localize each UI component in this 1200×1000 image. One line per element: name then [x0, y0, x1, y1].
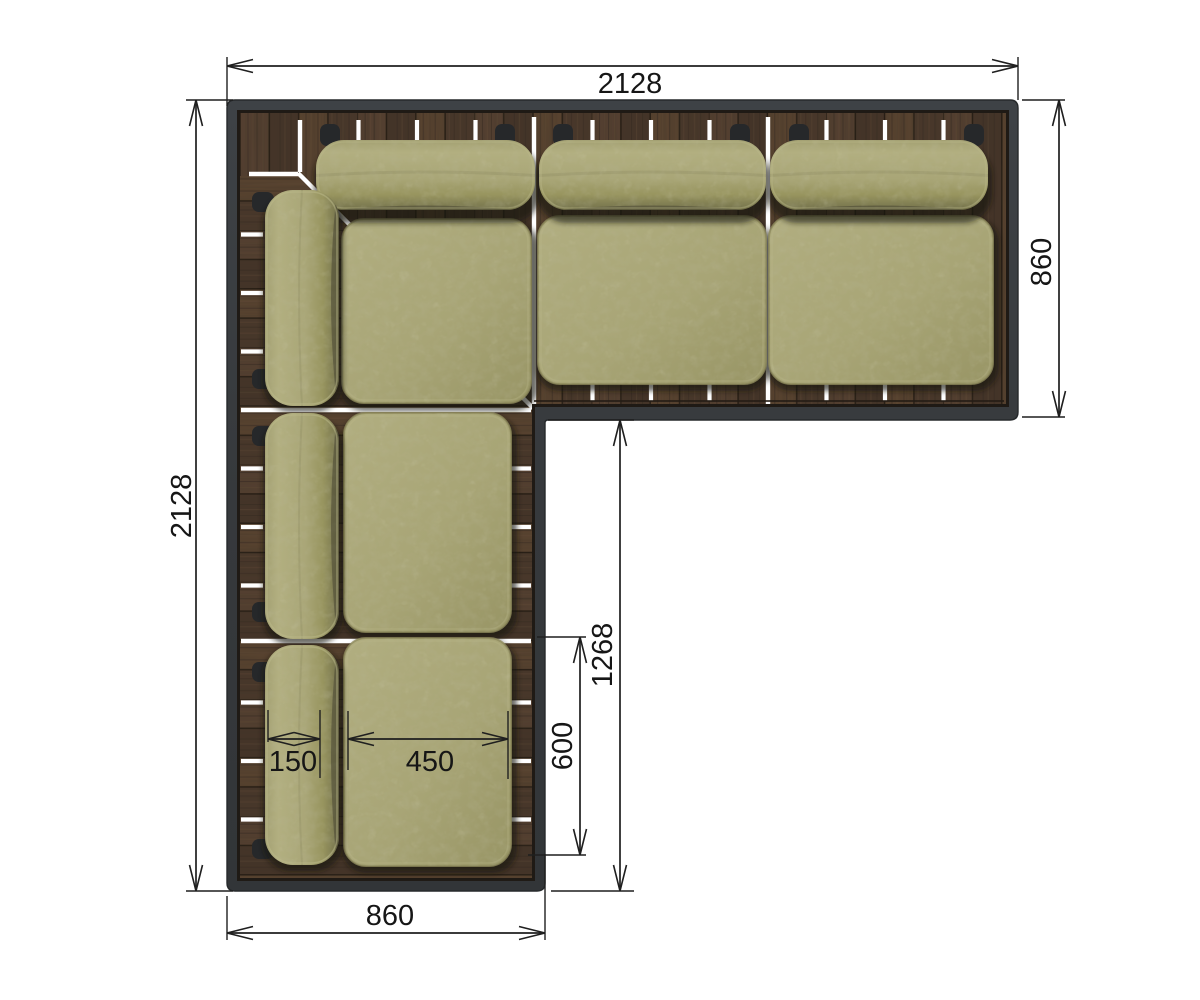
svg-text:860: 860	[1026, 238, 1058, 286]
svg-text:450: 450	[406, 746, 454, 778]
svg-text:150: 150	[269, 746, 317, 778]
svg-text:2128: 2128	[166, 474, 198, 539]
svg-text:2128: 2128	[598, 68, 663, 100]
svg-text:1268: 1268	[587, 623, 619, 688]
svg-text:860: 860	[366, 900, 414, 932]
svg-text:600: 600	[547, 722, 579, 770]
